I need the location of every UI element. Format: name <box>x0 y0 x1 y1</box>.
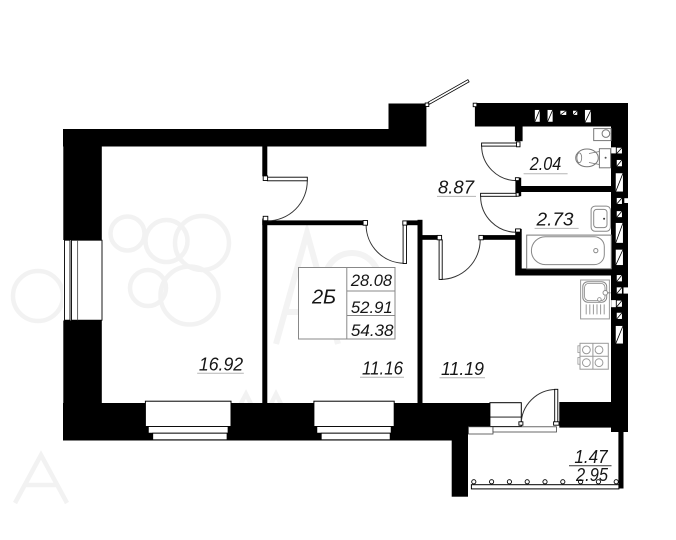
svg-text:8.87: 8.87 <box>438 177 475 198</box>
svg-text:2Б: 2Б <box>311 287 336 309</box>
svg-text:11.19: 11.19 <box>441 358 484 379</box>
svg-text:28.08: 28.08 <box>350 272 393 290</box>
svg-text:2.95: 2.95 <box>575 464 609 485</box>
svg-text:52.91: 52.91 <box>351 299 393 317</box>
svg-text:2.73: 2.73 <box>535 209 574 230</box>
svg-text:54.38: 54.38 <box>351 322 395 340</box>
svg-text:11.16: 11.16 <box>362 357 404 378</box>
svg-text:16.92: 16.92 <box>199 354 244 375</box>
svg-text:2.04: 2.04 <box>529 153 561 174</box>
